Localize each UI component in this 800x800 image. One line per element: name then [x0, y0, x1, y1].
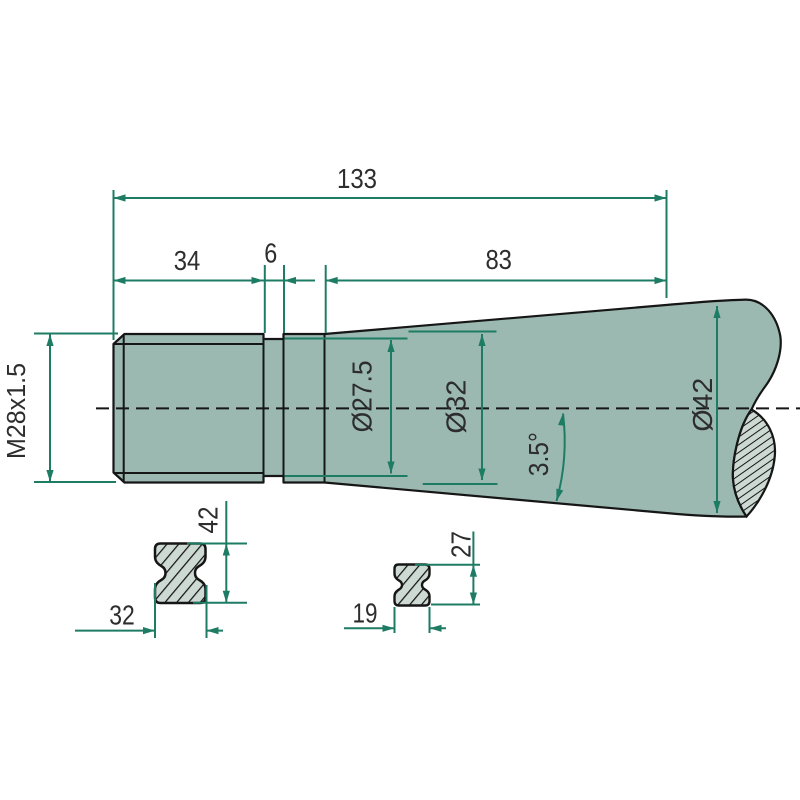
- svg-text:Ø32: Ø32: [441, 380, 472, 434]
- svg-text:Ø42: Ø42: [687, 378, 718, 432]
- svg-text:M28x1.5: M28x1.5: [3, 363, 31, 459]
- svg-text:3.5°: 3.5°: [523, 432, 554, 476]
- svg-text:27: 27: [446, 531, 477, 558]
- svg-text:42: 42: [193, 507, 224, 534]
- svg-text:19: 19: [353, 598, 378, 629]
- svg-text:6: 6: [264, 238, 277, 269]
- svg-text:32: 32: [109, 600, 135, 631]
- svg-text:Ø27.5: Ø27.5: [347, 360, 378, 432]
- svg-text:133: 133: [337, 163, 377, 194]
- svg-text:83: 83: [485, 244, 512, 275]
- svg-text:34: 34: [174, 245, 201, 276]
